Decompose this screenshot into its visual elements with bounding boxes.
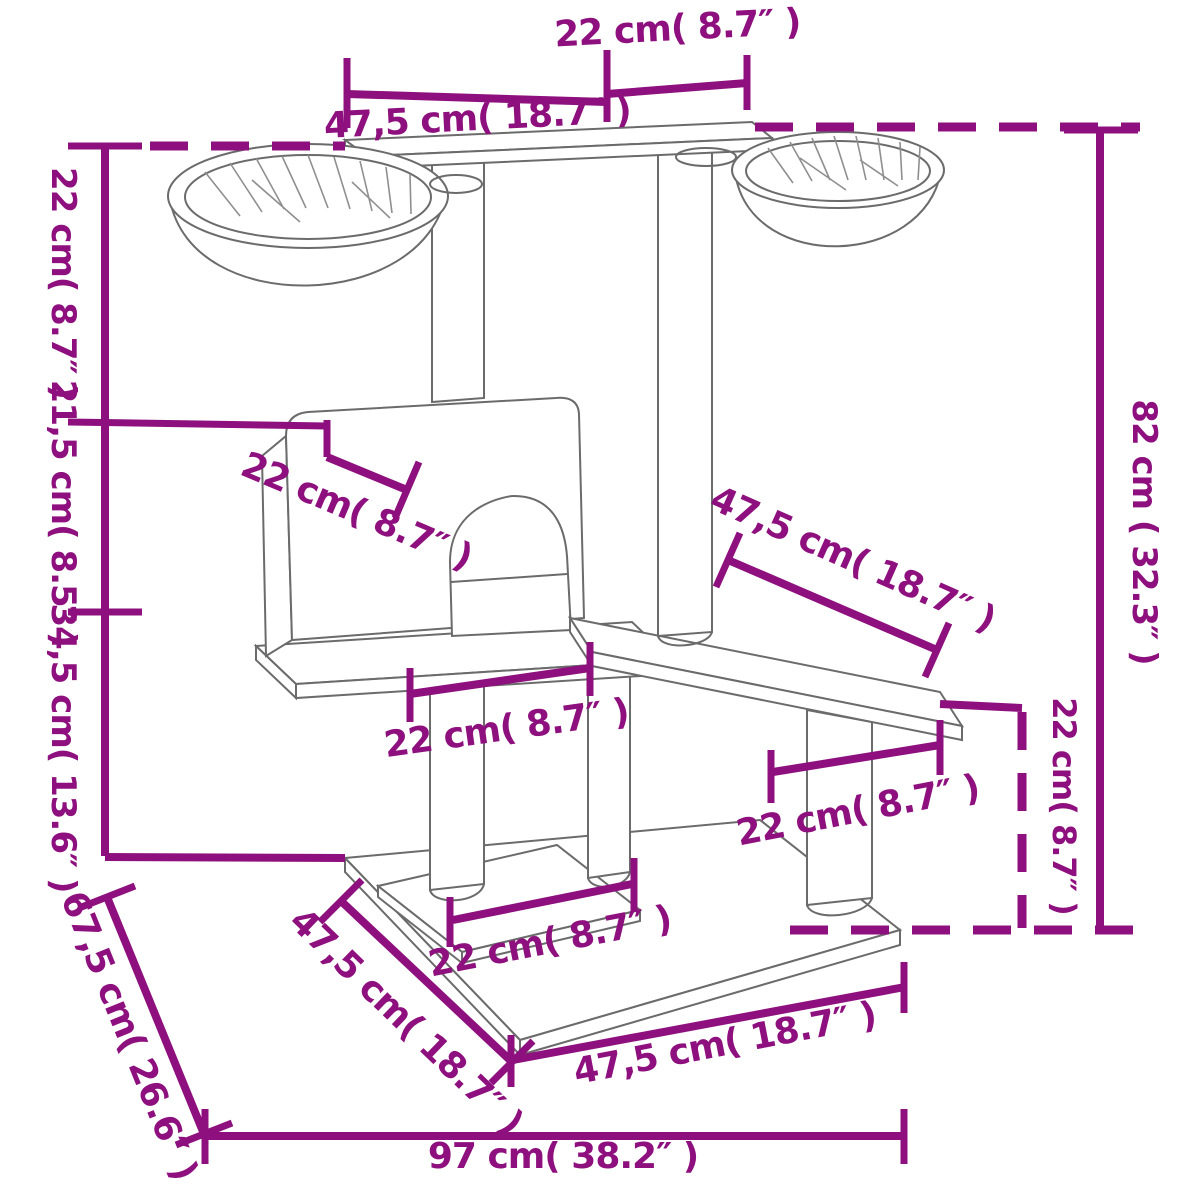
label-top-depth: 22 cm( 8.7″ ) bbox=[553, 2, 801, 56]
house-arch-doorway bbox=[450, 496, 571, 636]
cat-tree-drawing bbox=[168, 122, 962, 1055]
right-basket bbox=[676, 132, 944, 246]
label-upper-height: 22 cm( 8.7″ ) bbox=[43, 167, 83, 399]
label-base-total-width: 97 cm( 38.2″ ) bbox=[428, 1136, 698, 1177]
label-step-height: 22 cm( 8.7″ ) bbox=[1045, 697, 1083, 915]
cat-tree-dimension-diagram: 22 cm( 8.7″ ) 47,5 cm( 18.7″ ) 22 cm( 8.… bbox=[0, 0, 1200, 1200]
dimension-diagram-page: 22 cm( 8.7″ ) 47,5 cm( 18.7″ ) 22 cm( 8.… bbox=[0, 0, 1200, 1200]
label-lower-height: 34,5 cm( 13.6″ ) bbox=[43, 603, 83, 892]
label-total-height: 82 cm ( 32.3″ ) bbox=[1124, 399, 1164, 664]
dimension-step-height bbox=[940, 704, 1022, 708]
label-base-diagonal: 67,5 cm( 26.6″ ) bbox=[52, 886, 205, 1186]
main-post bbox=[658, 128, 712, 645]
